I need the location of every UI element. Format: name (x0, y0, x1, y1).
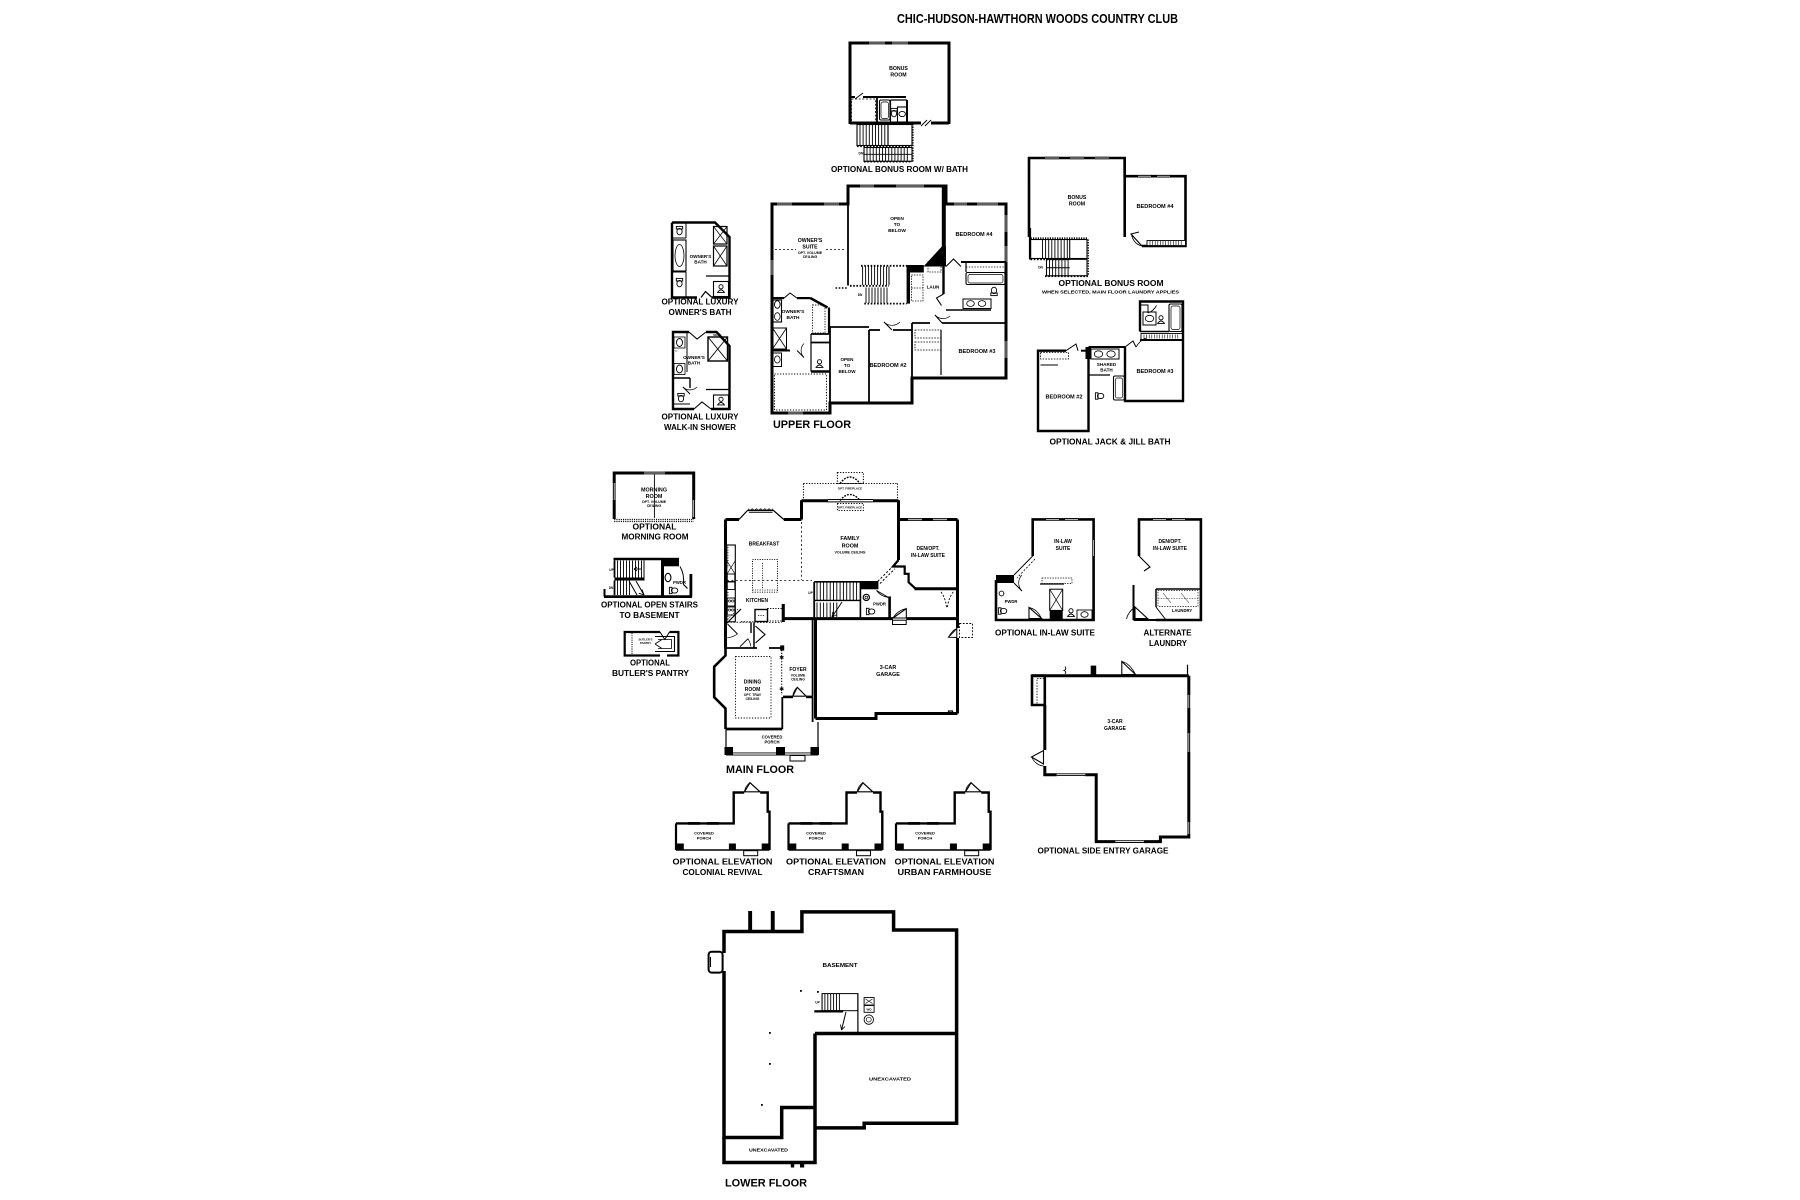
svg-text:PANTRY: PANTRY (640, 641, 651, 645)
svg-text:PORCH: PORCH (809, 836, 824, 841)
svg-text:BELOW: BELOW (838, 369, 856, 374)
svg-text:ROOM: ROOM (890, 73, 906, 79)
svg-text:OPT. FIREPLACE: OPT. FIREPLACE (838, 487, 863, 491)
svg-text:CHIC-HUDSON-HAWTHORN WOODS COU: CHIC-HUDSON-HAWTHORN WOODS COUNTRY CLUB (897, 11, 1178, 26)
svg-text:BEDROOM #3: BEDROOM #3 (1137, 369, 1174, 375)
svg-text:OPEN: OPEN (890, 216, 904, 222)
svg-text:CEILING: CEILING (791, 678, 805, 682)
svg-text:PORCH: PORCH (764, 740, 779, 745)
svg-text:PWDR: PWDR (873, 602, 886, 607)
svg-text:DN: DN (609, 586, 614, 590)
svg-text:CEILING: CEILING (647, 504, 662, 508)
svg-text:OPTIONAL SIDE ENTRY GARAGE: OPTIONAL SIDE ENTRY GARAGE (1038, 847, 1170, 856)
svg-text:3-CAR: 3-CAR (880, 665, 897, 671)
svg-text:✱: ✱ (779, 686, 784, 693)
svg-text:URBAN FARMHOUSE: URBAN FARMHOUSE (898, 868, 993, 877)
svg-text:OPTIONAL OPEN STAIRS: OPTIONAL OPEN STAIRS (601, 601, 699, 610)
svg-text:FAMILY: FAMILY (840, 536, 860, 542)
svg-text:OWNER'S: OWNER'S (690, 254, 712, 259)
svg-text:LAUN: LAUN (927, 285, 940, 290)
svg-text:WD: WD (867, 1008, 873, 1012)
svg-text:ALTERNATE: ALTERNATE (1144, 629, 1193, 638)
svg-text:BEDROOM #3: BEDROOM #3 (959, 349, 996, 355)
svg-text:ROOM: ROOM (842, 544, 859, 550)
svg-text:BREAKFAST: BREAKFAST (749, 542, 780, 548)
svg-text:MAIN FLOOR: MAIN FLOOR (726, 764, 794, 776)
svg-text:BONUS: BONUS (1068, 195, 1087, 201)
svg-text:CRAFTSMAN: CRAFTSMAN (808, 868, 864, 877)
svg-text:SUITE: SUITE (1056, 546, 1071, 552)
svg-text:BATH: BATH (688, 361, 701, 366)
svg-text:OPTIONAL: OPTIONAL (633, 523, 677, 532)
svg-text:BATH: BATH (694, 260, 707, 265)
svg-text:MORNING ROOM: MORNING ROOM (622, 533, 689, 542)
svg-text:BATH: BATH (1100, 368, 1113, 373)
svg-text:PORCH: PORCH (918, 836, 933, 841)
svg-text:WHEN SELECTED, MAIN FLOOR LAUN: WHEN SELECTED, MAIN FLOOR LAUNDRY APPLIE… (1042, 290, 1179, 295)
svg-text:OWNER'S BATH: OWNER'S BATH (669, 308, 732, 317)
svg-text:OPEN: OPEN (840, 357, 854, 362)
svg-text:UNEXCAVATED: UNEXCAVATED (869, 1077, 911, 1082)
svg-text:IN-LAW: IN-LAW (1054, 539, 1072, 545)
svg-text:BEDROOM #2: BEDROOM #2 (870, 363, 907, 369)
svg-text:BEDROOM #4: BEDROOM #4 (956, 232, 993, 238)
svg-text:DN: DN (858, 293, 863, 297)
svg-text:OWNER'S: OWNER'S (798, 238, 823, 244)
svg-text:OPTIONAL: OPTIONAL (630, 659, 670, 668)
svg-text:COLONIAL REVIVAL: COLONIAL REVIVAL (683, 868, 763, 877)
svg-text:CEILING: CEILING (746, 697, 760, 701)
svg-text:BEDROOM #2: BEDROOM #2 (1046, 395, 1083, 401)
svg-text:TO: TO (844, 363, 851, 368)
svg-text:BASEMENT: BASEMENT (823, 963, 859, 969)
svg-text:VOLUME CEILING: VOLUME CEILING (835, 551, 866, 555)
svg-text:BEDROOM #4: BEDROOM #4 (1137, 204, 1174, 210)
svg-text:OPT. FIREPLACE: OPT. FIREPLACE (838, 506, 863, 510)
svg-text:DINING: DINING (744, 680, 762, 686)
svg-text:SHARED: SHARED (1097, 362, 1117, 367)
svg-text:OPTIONAL ELEVATION: OPTIONAL ELEVATION (895, 858, 995, 867)
svg-text:DN: DN (859, 152, 864, 156)
svg-text:GARAGE: GARAGE (876, 672, 900, 678)
svg-text:PWDR: PWDR (1005, 599, 1018, 604)
svg-text:ROOM: ROOM (1069, 202, 1085, 208)
svg-text:OPTIONAL ELEVATION: OPTIONAL ELEVATION (673, 858, 773, 867)
svg-text:OWNER'S: OWNER'S (782, 309, 806, 315)
svg-text:SUITE: SUITE (802, 245, 818, 251)
svg-text:LAUNDRY: LAUNDRY (1149, 639, 1188, 648)
svg-text:FOYER: FOYER (789, 667, 807, 673)
svg-text:OPTIONAL LUXURY: OPTIONAL LUXURY (662, 298, 740, 307)
svg-text:MORNING: MORNING (641, 488, 667, 494)
svg-text:PORCH: PORCH (697, 836, 712, 841)
svg-text:OPTIONAL BONUS ROOM W/ BATH: OPTIONAL BONUS ROOM W/ BATH (831, 165, 968, 174)
svg-text:3-CAR: 3-CAR (1107, 719, 1123, 725)
svg-text:LAUNDRY: LAUNDRY (1172, 608, 1193, 613)
svg-text:OPTIONAL ELEVATION: OPTIONAL ELEVATION (786, 858, 886, 867)
svg-text:IN-LAW SUITE: IN-LAW SUITE (911, 553, 946, 559)
svg-text:KITCHEN: KITCHEN (746, 598, 769, 604)
svg-text:IN-LAW SUITE: IN-LAW SUITE (1153, 546, 1188, 552)
svg-text:BONUS: BONUS (889, 66, 908, 72)
svg-text:OPTIONAL JACK & JILL BATH: OPTIONAL JACK & JILL BATH (1050, 438, 1171, 447)
svg-text:DEN/OPT.: DEN/OPT. (916, 546, 940, 552)
svg-text:LOWER FLOOR: LOWER FLOOR (725, 1178, 807, 1190)
svg-text:OPTIONAL IN-LAW SUITE: OPTIONAL IN-LAW SUITE (995, 629, 1096, 638)
svg-text:CEILING: CEILING (803, 255, 818, 259)
svg-text:UNEXCAVATED: UNEXCAVATED (749, 1148, 788, 1153)
svg-text:DEN/OPT.: DEN/OPT. (1158, 539, 1182, 545)
svg-text:BELOW: BELOW (888, 228, 906, 234)
svg-text:UPPER FLOOR: UPPER FLOOR (773, 419, 851, 431)
svg-text:OPTIONAL BONUS ROOM: OPTIONAL BONUS ROOM (1059, 279, 1164, 288)
svg-text:WALK-IN SHOWER: WALK-IN SHOWER (664, 423, 736, 432)
svg-text:OPTIONAL LUXURY: OPTIONAL LUXURY (662, 413, 740, 422)
svg-text:✱: ✱ (779, 655, 784, 662)
svg-text:BATH: BATH (787, 315, 801, 321)
svg-text:BUTLER'S PANTRY: BUTLER'S PANTRY (612, 669, 690, 678)
svg-text:DN: DN (1038, 266, 1043, 270)
svg-text:TO BASEMENT: TO BASEMENT (620, 611, 680, 620)
svg-text:TO: TO (894, 222, 901, 228)
svg-text:OWNER'S: OWNER'S (683, 355, 705, 360)
svg-text:GARAGE: GARAGE (1104, 726, 1127, 732)
